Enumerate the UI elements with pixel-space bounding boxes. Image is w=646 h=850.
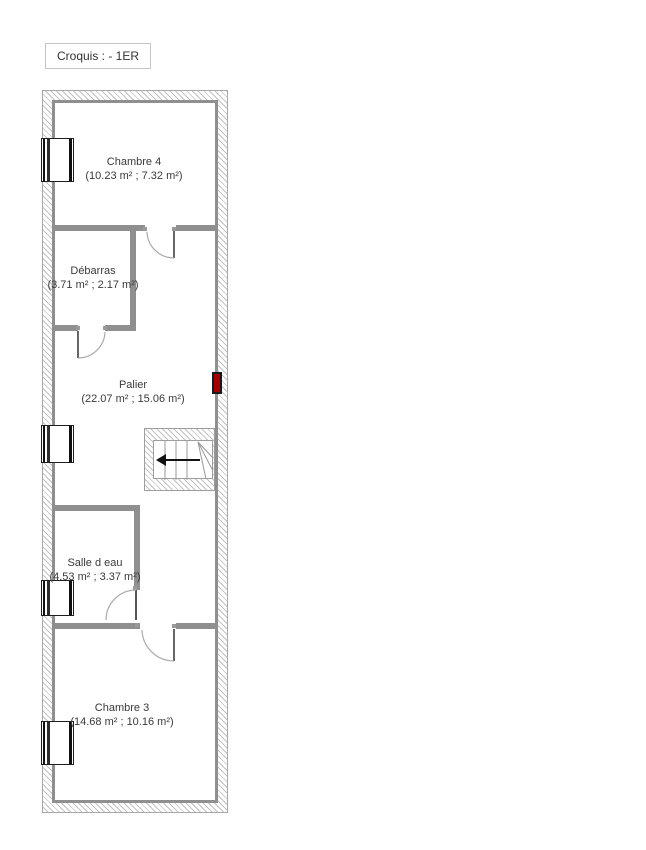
- room-area: (22.07 m² ; 15.06 m²): [53, 392, 213, 406]
- room-name: Chambre 3: [42, 701, 202, 715]
- wall-chambre3-north-right: [176, 623, 215, 629]
- window-glass-bar: [43, 426, 45, 462]
- window-glass-bar: [47, 581, 50, 615]
- plan-title-box: Croquis : - 1ER: [45, 43, 151, 69]
- window-frame-bar: [69, 426, 72, 462]
- room-label-debarras: Débarras (3.71 m² ; 2.17 m²): [38, 264, 148, 292]
- staircase: [153, 440, 213, 479]
- room-area: (4.53 m² ; 3.37 m²): [35, 570, 155, 584]
- room-area: (3.71 m² ; 2.17 m²): [38, 278, 148, 292]
- plan-title: Croquis : - 1ER: [57, 49, 139, 63]
- wall-debarras-south-right: [105, 325, 136, 331]
- wall-debarras-south-left: [55, 325, 78, 331]
- window-icon-salledeau: [41, 580, 74, 616]
- room-label-chambre3: Chambre 3 (14.68 m² ; 10.16 m²): [42, 701, 202, 729]
- wall-chambre4-south-right: [176, 225, 215, 231]
- window-glass-bar: [43, 581, 45, 615]
- room-label-salledeau: Salle d eau (4.53 m² ; 3.37 m²): [35, 556, 155, 584]
- staircase-treads-icon: [154, 441, 214, 480]
- wall-salledeau-north: [55, 505, 140, 511]
- wall-chambre3-north-left: [55, 623, 140, 629]
- room-label-palier: Palier (22.07 m² ; 15.06 m²): [53, 378, 213, 406]
- radiator-icon: [212, 372, 222, 394]
- window-icon-palier: [41, 425, 74, 463]
- room-label-chambre4: Chambre 4 (10.23 m² ; 7.32 m²): [59, 155, 209, 183]
- room-name: Salle d eau: [35, 556, 155, 570]
- window-frame-bar: [69, 581, 72, 615]
- window-glass-bar: [47, 139, 50, 181]
- room-area: (10.23 m² ; 7.32 m²): [59, 169, 209, 183]
- floor-plan-page: Croquis : - 1ER: [0, 0, 646, 850]
- room-name: Débarras: [38, 264, 148, 278]
- room-name: Chambre 4: [59, 155, 209, 169]
- room-name: Palier: [53, 378, 213, 392]
- room-area: (14.68 m² ; 10.16 m²): [42, 715, 202, 729]
- window-glass-bar: [47, 426, 50, 462]
- window-glass-bar: [43, 139, 45, 181]
